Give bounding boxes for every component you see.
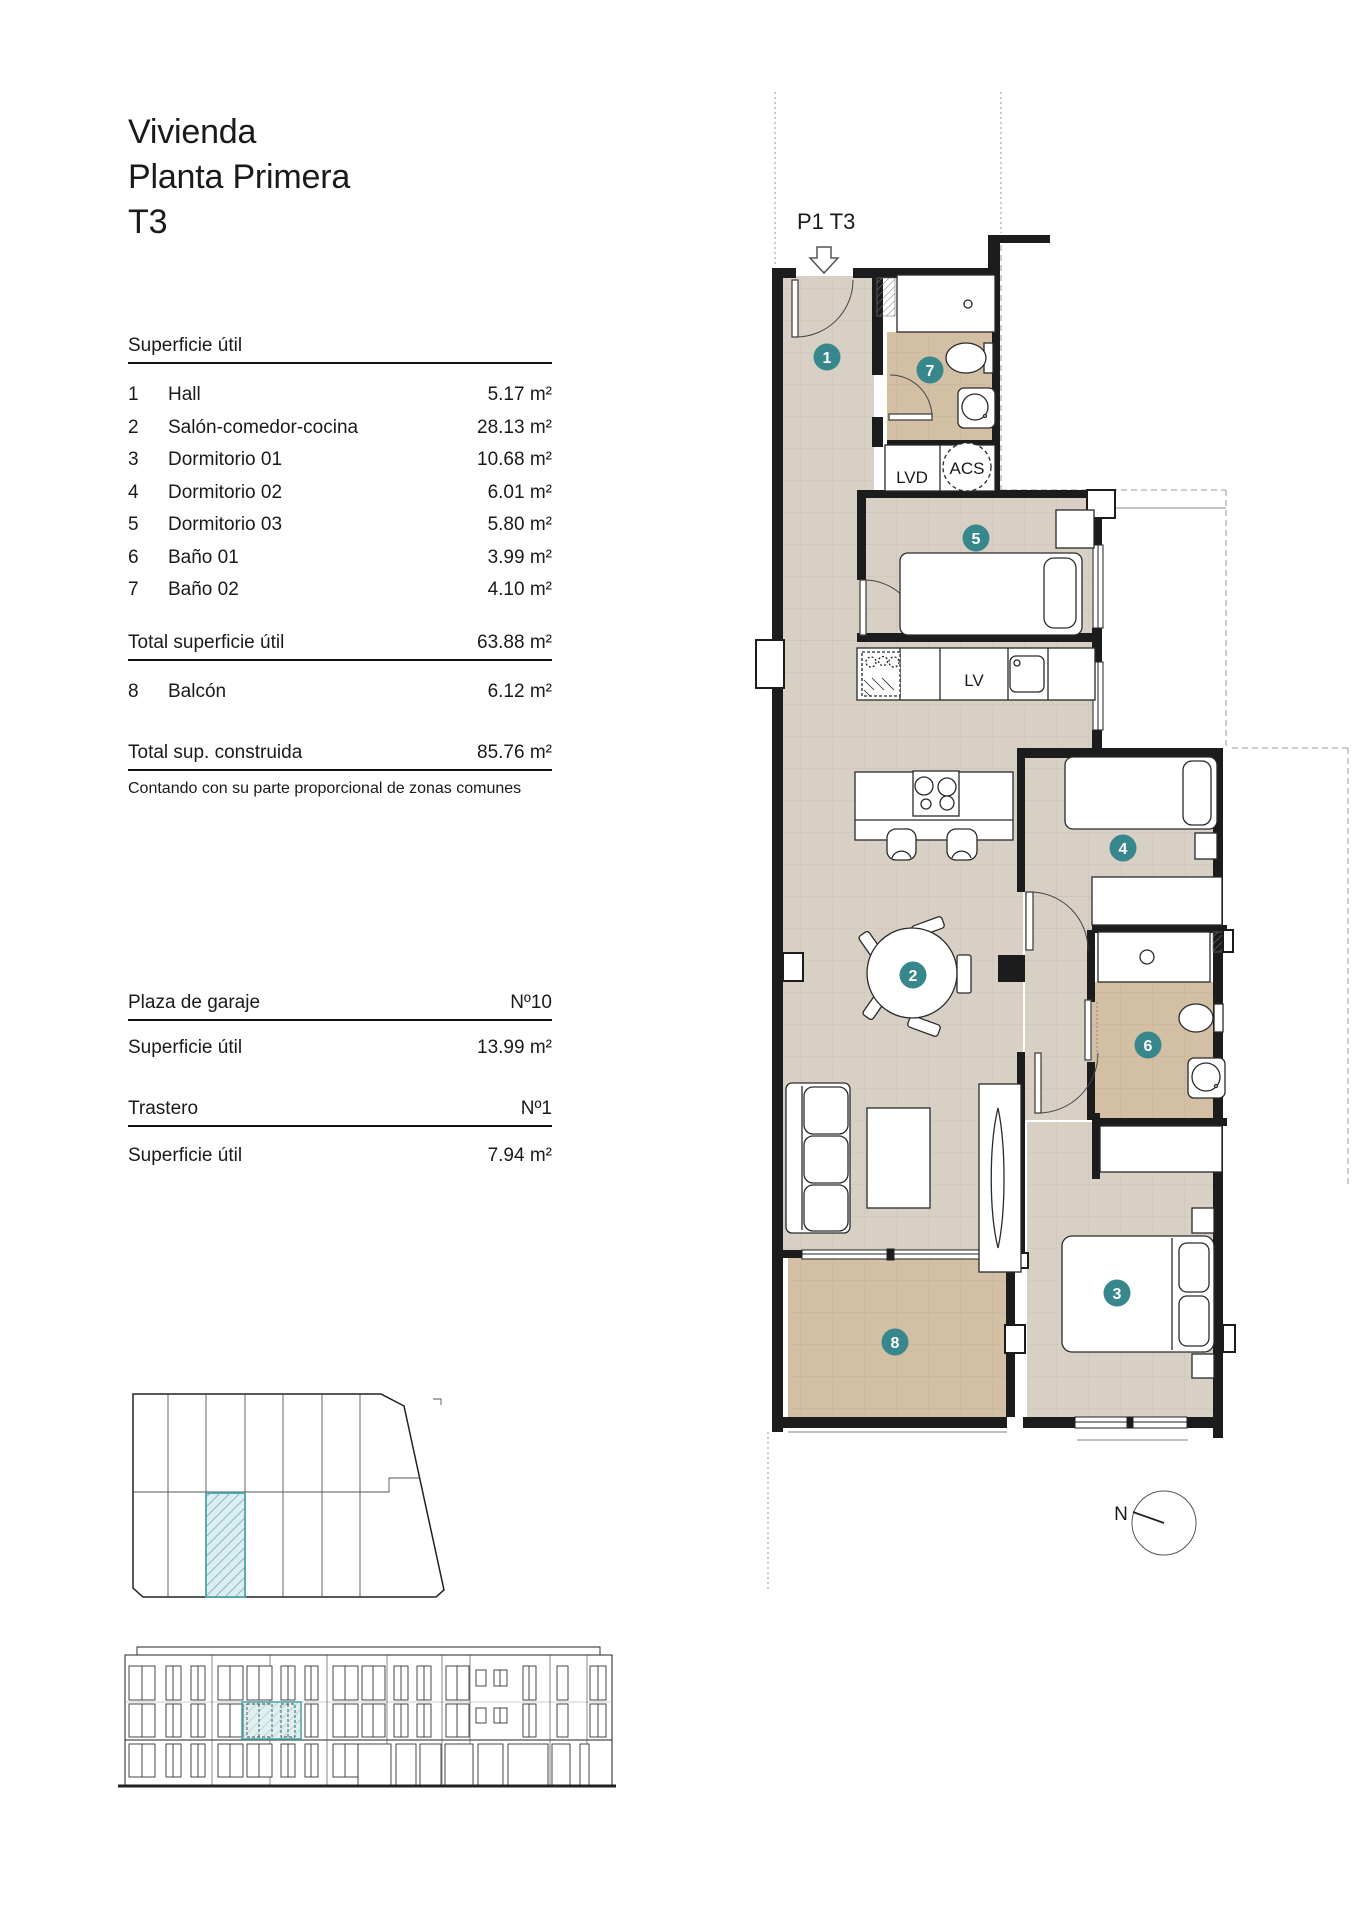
bath2-door-leaf: [889, 414, 932, 420]
stool: [947, 829, 977, 860]
entry-arrow-icon: [810, 247, 838, 273]
room-badge-2: 2: [909, 968, 918, 985]
lv-label: LV: [964, 671, 984, 690]
building-elevation: [118, 1647, 616, 1786]
stool: [887, 829, 916, 860]
garage-block: Plaza de garaje Nº10 Superficie útil 13.…: [128, 992, 552, 1059]
bedroom3-door-leaf: [860, 580, 866, 635]
site-key-plan: [133, 1394, 444, 1597]
title-line-2: Planta Primera: [128, 155, 350, 200]
storage-area-row: Superficie útil 7.94 m²: [128, 1145, 552, 1167]
page-title: Vivienda Planta Primera T3: [128, 110, 350, 245]
pillow: [1179, 1243, 1209, 1292]
plan-drawing: P1 T3 LVD ACS LV 1 7 5 2 4 6 3 8 N: [0, 0, 1357, 1920]
lvd-label: LVD: [896, 468, 928, 487]
room-badge-7: 7: [926, 363, 935, 380]
toilet: [1179, 1004, 1213, 1032]
pillow: [1179, 1296, 1209, 1346]
room-badge-3: 3: [1113, 1286, 1122, 1303]
chair-tucked: [957, 955, 971, 993]
balcony-row: 8 Balcón 6.12 m²: [128, 681, 552, 714]
pillow: [1183, 761, 1211, 825]
north-compass: N: [1114, 1491, 1196, 1555]
area-table-header: Superficie útil: [128, 335, 552, 364]
common-zones-note: Contando con su parte proporcional de zo…: [128, 780, 552, 798]
pillow: [1044, 558, 1076, 628]
bedroom1-door-leaf: [1035, 1053, 1041, 1113]
hallway-door-leaf: [1026, 892, 1033, 950]
total-util-row: Total superficie útil 63.88 m²: [128, 632, 552, 661]
toilet-tank: [1214, 1004, 1223, 1032]
title-line-1: Vivienda: [128, 110, 350, 155]
wardrobe: [1092, 877, 1222, 925]
toilet: [946, 343, 986, 373]
title-line-3: T3: [128, 200, 350, 245]
storage-block: Trastero Nº1 Superficie útil 7.94 m²: [128, 1098, 552, 1167]
bath1-sliding-door-leaf: [1085, 1000, 1091, 1060]
total-construida-row: Total sup. construida 85.76 m²: [128, 742, 552, 771]
shower-tray: [897, 275, 995, 332]
totals-block: Total superficie útil 63.88 m² 8 Balcón …: [128, 632, 552, 798]
coffee-table: [867, 1108, 930, 1208]
shower-drain: [964, 300, 972, 308]
acs-label: ACS: [950, 459, 985, 478]
table-row: 4 Dormitorio 02 6.01 m²: [128, 482, 552, 515]
room-badge-8: 8: [891, 1335, 900, 1352]
nightstand: [1192, 1354, 1214, 1378]
table-row: 6 Baño 01 3.99 m²: [128, 547, 552, 580]
room-badge-1: 1: [823, 350, 832, 367]
elevation-windows-middle: [129, 1704, 606, 1737]
wardrobe: [1100, 1126, 1222, 1172]
nightstand: [1056, 510, 1094, 548]
room-badge-5: 5: [972, 531, 981, 548]
room-badge-4: 4: [1119, 841, 1128, 858]
garage-area-row: Superficie útil 13.99 m²: [128, 1037, 552, 1059]
unit-label: P1 T3: [797, 209, 855, 234]
area-table: Superficie útil 1 Hall 5.17 m² 2 Salón-c…: [128, 335, 552, 612]
nightstand: [1192, 1208, 1214, 1233]
floorplan-sheet: P1 T3 LVD ACS LV 1 7 5 2 4 6 3 8 N: [0, 0, 1357, 1920]
north-label: N: [1114, 1504, 1128, 1525]
garage-row: Plaza de garaje Nº10: [128, 992, 552, 1021]
table-row: 5 Dormitorio 03 5.80 m²: [128, 514, 552, 547]
table-row: 2 Salón-comedor-cocina 28.13 m²: [128, 417, 552, 450]
entrance-door-leaf: [792, 280, 798, 337]
nightstand: [1195, 833, 1217, 859]
elevation-windows-top: [129, 1666, 606, 1700]
storage-row: Trastero Nº1: [128, 1098, 552, 1127]
table-row: 7 Baño 02 4.10 m²: [128, 579, 552, 612]
table-row: 3 Dormitorio 01 10.68 m²: [128, 449, 552, 482]
table-row: 1 Hall 5.17 m²: [128, 384, 552, 417]
room-badge-6: 6: [1144, 1038, 1153, 1055]
